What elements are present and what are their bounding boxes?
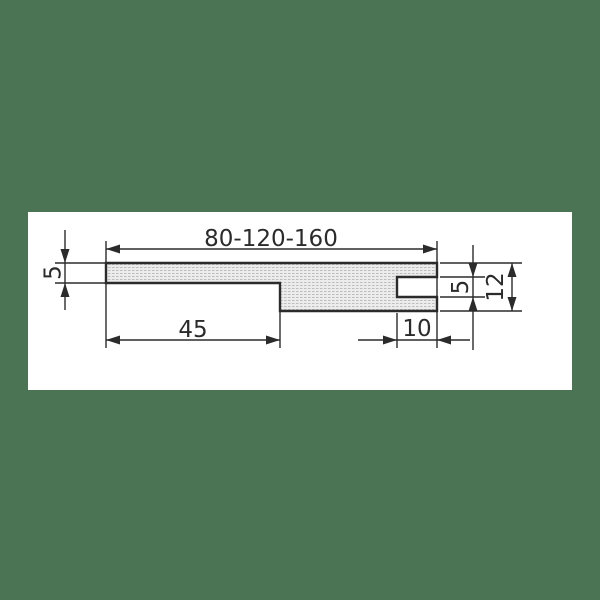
arrowhead-up (469, 297, 478, 311)
arrowhead-left (437, 336, 451, 345)
arrowhead-up (61, 283, 70, 297)
arrowhead-left (106, 336, 120, 345)
notch-depth-label: 10 (402, 316, 431, 342)
profile-shape (106, 263, 437, 311)
arrowhead-down (469, 263, 478, 277)
dimension-top-thickness: 5 (41, 230, 107, 310)
top-thickness-label: 5 (41, 265, 67, 280)
right-thickness-label: 12 (483, 272, 509, 301)
arrowhead-down (61, 249, 70, 263)
arrowhead-right (266, 336, 280, 345)
left-segment-label: 45 (178, 317, 207, 343)
desktop-background: { "colors": { "background": "#4b7455", "… (0, 0, 600, 600)
arrowhead-right (383, 336, 397, 345)
notch-height-label: 5 (448, 280, 474, 295)
arrowhead-right (423, 245, 437, 254)
drawing-canvas: 80-120-160 5 45 10 (28, 212, 572, 390)
dimension-notch-depth: 10 (358, 313, 470, 348)
dimension-notch-height: 5 (440, 245, 485, 350)
arrowhead-left (106, 245, 120, 254)
dimension-left-segment: 45 (106, 311, 280, 348)
overall-width-label: 80-120-160 (204, 226, 338, 252)
cross-section-drawing: 80-120-160 5 45 10 (28, 212, 572, 390)
